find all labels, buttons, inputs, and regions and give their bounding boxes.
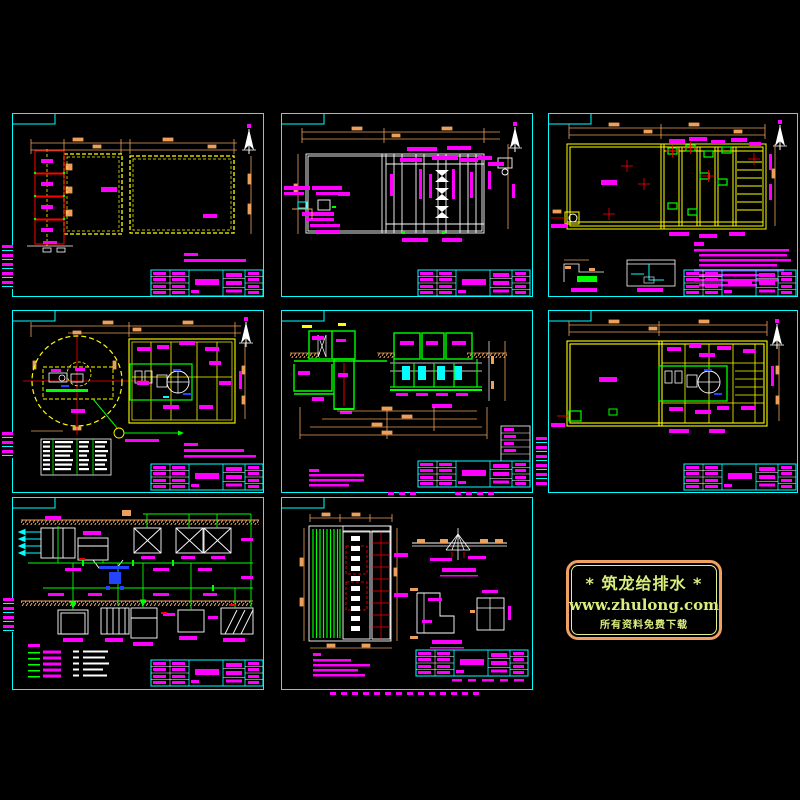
title-block <box>151 660 263 686</box>
margin-block-sheet-6 <box>536 437 547 487</box>
diffuser-symbols <box>435 170 449 218</box>
outlet-detail <box>27 246 73 252</box>
sheet-2-drawing <box>282 114 532 296</box>
sheet-7-drawing <box>13 498 263 689</box>
sheet-3-drawing <box>549 114 797 296</box>
aerator-detail <box>412 528 507 577</box>
influent-arrows <box>19 530 41 556</box>
watermark-url: www.zhulong.com <box>569 596 719 614</box>
north-arrow-icon <box>239 317 253 347</box>
fold-mark <box>122 510 131 516</box>
drawing-sheet-6 <box>548 310 798 493</box>
tanks-bottom-row <box>58 608 253 638</box>
labels <box>45 516 253 646</box>
dimension-lines <box>569 320 779 421</box>
title-block <box>151 270 263 296</box>
title-block <box>416 650 528 676</box>
labels <box>284 146 515 242</box>
drawing-sheet-1 <box>12 113 264 297</box>
corner-notch <box>282 311 324 321</box>
margin-block-sheet-7 <box>3 598 14 632</box>
tanks-top-row <box>41 528 231 568</box>
sheet-1-drawing <box>13 114 263 296</box>
drawing-sheet-3 <box>548 113 798 297</box>
margin-block-sheet-1 <box>2 245 13 289</box>
dimension-lines <box>31 321 245 431</box>
notes <box>184 443 256 458</box>
drawing-sheet-4 <box>12 310 264 493</box>
bottom-marks <box>452 679 524 682</box>
north-arrow-icon <box>242 124 256 154</box>
support-details <box>410 588 511 649</box>
legend <box>28 644 109 678</box>
bottom-dimensions <box>300 407 487 439</box>
title-block <box>684 464 796 490</box>
index-table <box>501 426 530 461</box>
corner-notch <box>549 114 591 124</box>
ground-hatch <box>290 353 507 358</box>
north-arrow-icon <box>770 319 784 349</box>
left-structure-detail <box>298 323 352 414</box>
zhulong-watermark-inner: * 筑龙给排水 * www.zhulong.com 所有资料免费下载 <box>571 565 717 635</box>
sludge-cells <box>34 151 65 244</box>
notes <box>184 253 246 262</box>
right-structure <box>390 333 505 408</box>
detail-2 <box>627 260 675 292</box>
corner-notch <box>13 311 55 321</box>
watermark-subtitle: 所有资料免费下载 <box>600 616 688 631</box>
drawing-sheet-2 <box>281 113 533 297</box>
sheet-5-drawing <box>282 311 532 492</box>
drawing-sheet-5 <box>281 310 533 493</box>
equipment-markers <box>551 142 760 222</box>
watermark-title: * 筑龙给排水 * <box>586 570 703 594</box>
drawing-sheet-7 <box>12 497 264 690</box>
north-arrow-icon <box>508 122 522 152</box>
detail-1 <box>564 260 604 292</box>
notes <box>309 469 364 487</box>
corner-notch <box>549 311 591 321</box>
drawing-sheet-8 <box>281 497 533 690</box>
margin-block-sheet-4 <box>2 432 13 458</box>
dimension-lines <box>300 513 397 648</box>
title-block <box>418 461 530 487</box>
basin-walls <box>47 149 234 246</box>
stray-dashes-2 <box>455 492 497 495</box>
title-block <box>684 270 796 296</box>
aeration-grid-plan <box>309 526 408 641</box>
corner-notch <box>13 114 55 124</box>
sheet-6-drawing <box>549 311 797 492</box>
corner-notch <box>282 498 324 508</box>
sheet-4-drawing <box>13 311 263 492</box>
cad-workspace: * 筑龙给排水 * www.zhulong.com 所有资料免费下载 <box>0 0 800 800</box>
stray-dashes-1 <box>388 492 420 495</box>
corner-notch <box>282 114 324 124</box>
sheet-8-drawing <box>282 498 532 689</box>
left-structure <box>294 331 387 409</box>
corner-notch <box>13 498 55 508</box>
dosing-pump <box>99 566 129 590</box>
title-block <box>151 464 263 490</box>
stray-dashes-3 <box>330 692 480 695</box>
notes <box>313 653 370 677</box>
zhulong-watermark: * 筑龙给排水 * www.zhulong.com 所有资料免费下载 <box>566 560 722 640</box>
tank-walls <box>565 144 766 229</box>
title-block <box>418 270 530 296</box>
building-walls <box>567 341 767 426</box>
equipment-table <box>41 439 111 475</box>
